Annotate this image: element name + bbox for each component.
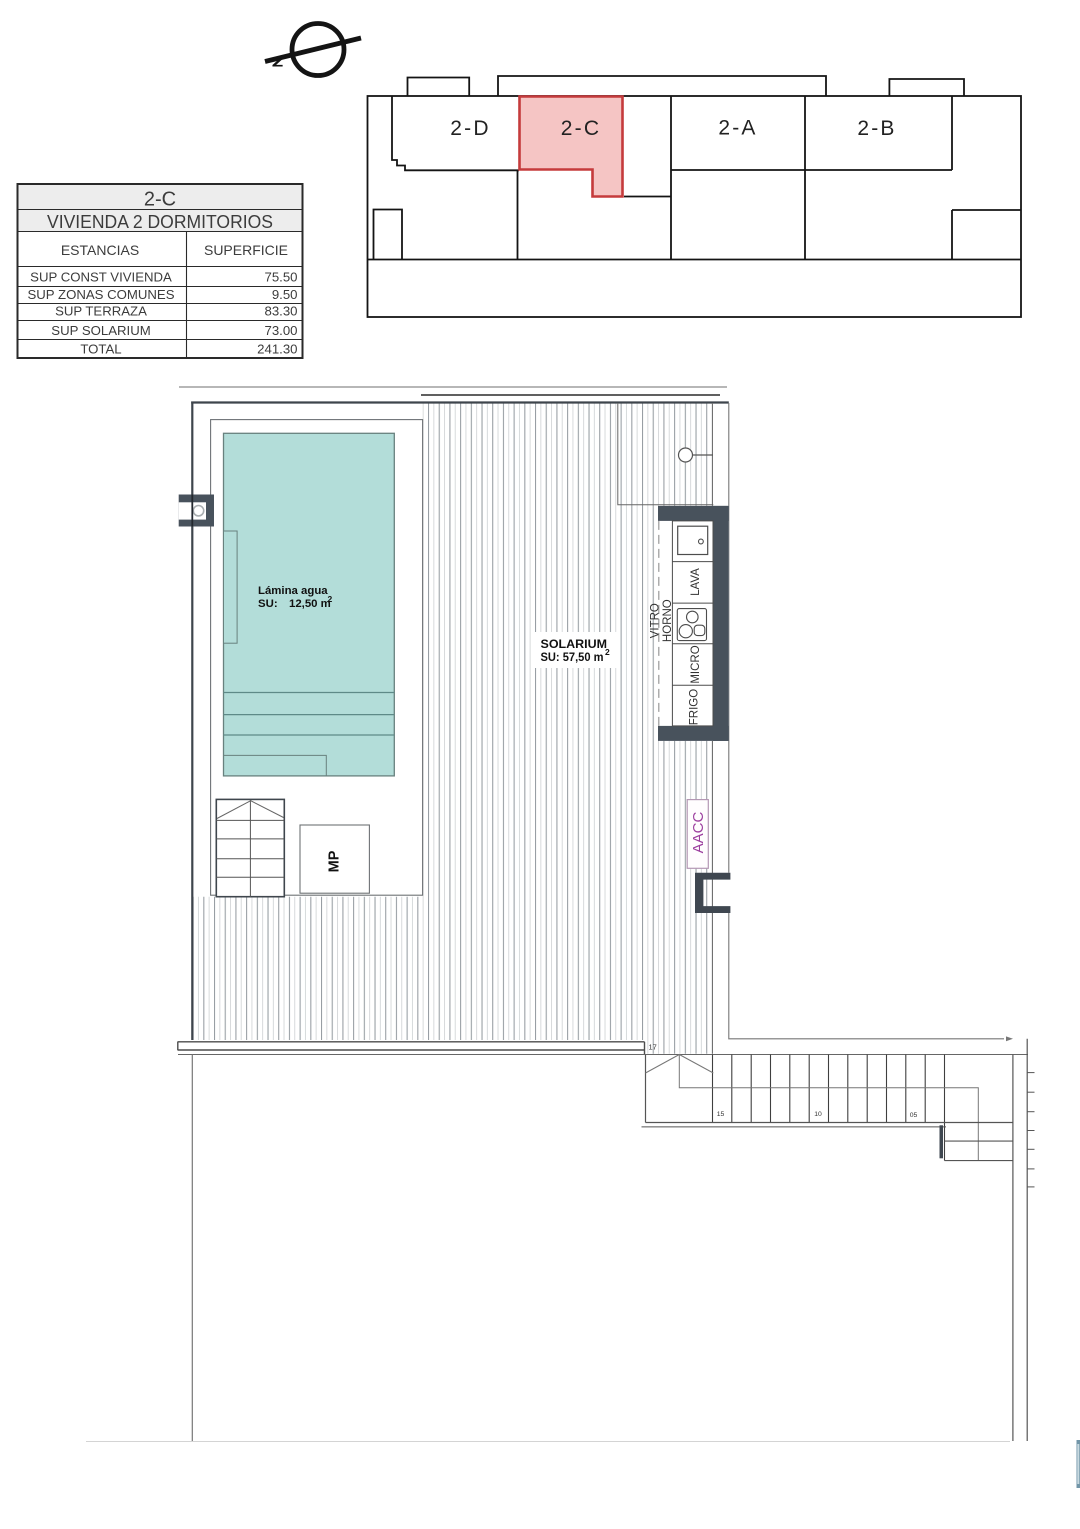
svg-text:2-C: 2-C [561, 117, 601, 140]
svg-text:2: 2 [328, 594, 333, 604]
svg-text:SU: 57,50 m: SU: 57,50 m [541, 651, 604, 664]
svg-text:VIVIENDA 2 DORMITORIOS: VIVIENDA 2 DORMITORIOS [47, 211, 273, 232]
svg-text:FRIGO: FRIGO [689, 689, 701, 725]
svg-text:SUP TERRAZA: SUP TERRAZA [55, 304, 147, 319]
svg-text:Lámina agua: Lámina agua [258, 585, 328, 597]
svg-text:MICRO: MICRO [690, 645, 702, 683]
svg-text:TOTAL: TOTAL [80, 342, 121, 357]
svg-text:MP: MP [327, 850, 343, 872]
svg-text:17: 17 [649, 1043, 657, 1052]
svg-text:75.50: 75.50 [264, 270, 297, 285]
svg-text:2: 2 [605, 647, 610, 657]
svg-text:AACC: AACC [690, 812, 707, 854]
svg-text:12,50 m: 12,50 m [289, 598, 331, 610]
svg-text:10: 10 [814, 1111, 822, 1118]
svg-text:15: 15 [717, 1111, 725, 1118]
svg-text:05: 05 [910, 1112, 918, 1119]
svg-text:SUPERFICIE: SUPERFICIE [204, 242, 288, 258]
svg-text:SUP SOLARIUM: SUP SOLARIUM [51, 323, 150, 338]
svg-text:9.50: 9.50 [272, 287, 298, 302]
svg-text:LAVA: LAVA [690, 568, 702, 596]
svg-text:2-A: 2-A [718, 117, 757, 140]
svg-text:SOLARIUM: SOLARIUM [541, 638, 608, 651]
svg-text:83.30: 83.30 [264, 304, 297, 319]
svg-text:SU:: SU: [258, 598, 278, 610]
svg-text:73.00: 73.00 [264, 323, 297, 338]
svg-text:SUP CONST VIVIENDA: SUP CONST VIVIENDA [30, 270, 172, 285]
svg-text:241.30: 241.30 [257, 342, 297, 357]
svg-text:ESTANCIAS: ESTANCIAS [61, 242, 139, 258]
svg-text:2-C: 2-C [144, 189, 176, 211]
svg-text:VITRO: VITRO [649, 603, 661, 638]
svg-text:HORNO: HORNO [662, 599, 674, 642]
svg-text:2-B: 2-B [857, 117, 896, 140]
svg-text:z: z [272, 54, 284, 71]
svg-text:2-D: 2-D [450, 117, 490, 140]
svg-text:SUP ZONAS COMUNES: SUP ZONAS COMUNES [27, 287, 174, 302]
